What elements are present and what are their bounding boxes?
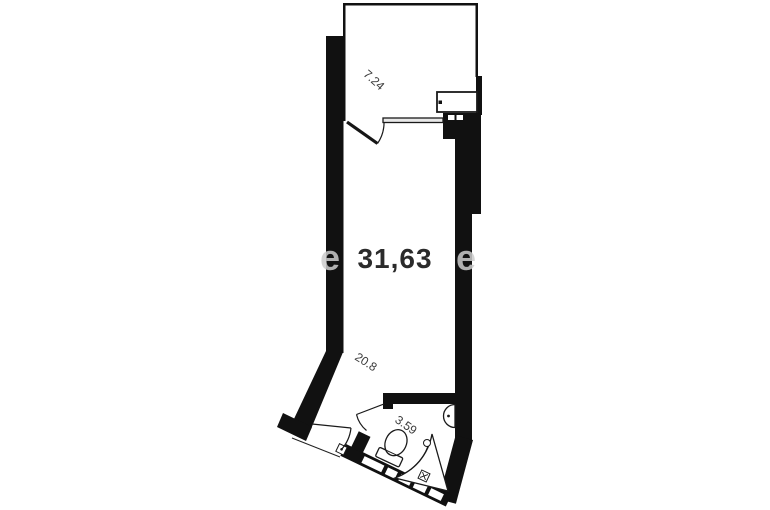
balcony-glazing-left	[343, 3, 346, 121]
bathroom-door-arc	[357, 415, 367, 431]
balcony-door-leaf	[347, 122, 378, 144]
balcony-window	[383, 118, 443, 123]
wall-left-diagonal	[293, 351, 344, 429]
label-balcony-area: 7.24	[361, 67, 388, 93]
watermark-left: e	[320, 237, 340, 278]
small-drain-circle-icon	[424, 440, 431, 447]
wall-left-upper	[326, 36, 343, 122]
watermark-right: e	[456, 237, 476, 278]
floorplan-page: e e 7.24 31,63 20.8 3.59	[0, 0, 770, 510]
wall-right-wide	[455, 137, 481, 214]
vent-shaft-slot-1	[448, 115, 455, 120]
entry-door-leaf	[312, 424, 351, 428]
bathroom-door	[357, 404, 385, 431]
balcony-glazing-right	[476, 3, 479, 77]
wall-bathroom-partition-stub	[383, 393, 393, 409]
floorplan-svg: e e 7.24 31,63 20.8 3.59	[0, 0, 770, 510]
balcony-door	[347, 118, 443, 144]
entry-threshold-line	[292, 438, 340, 457]
vent-shaft-slot-2	[457, 115, 464, 120]
label-lower-room-area: 20.8	[352, 350, 379, 375]
kitchen-unit-icon	[437, 92, 477, 112]
balcony-door-arc	[378, 121, 385, 144]
bathroom-door-leaf	[357, 404, 385, 415]
wall-sink-icon	[444, 405, 455, 428]
wall-bathroom-partition	[383, 393, 455, 404]
balcony-glazing-top	[343, 3, 478, 6]
label-main-area: 31,63	[357, 243, 432, 274]
